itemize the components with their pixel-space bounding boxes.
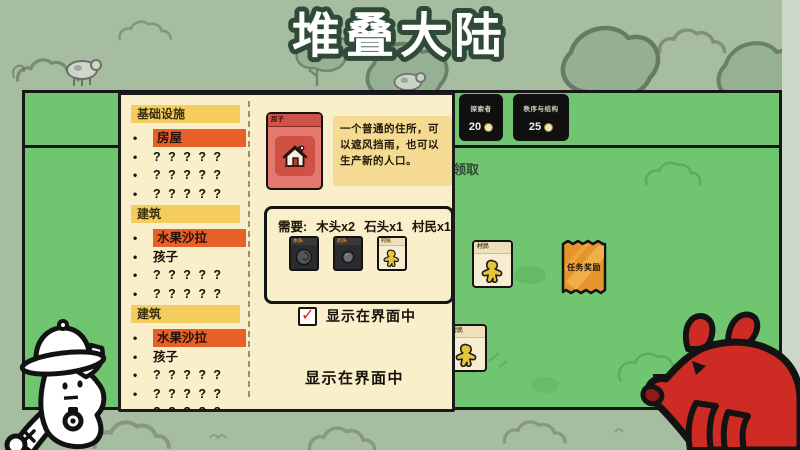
panel-divider	[248, 101, 250, 397]
requirement-qty: 村民x1	[412, 216, 451, 235]
section-header: 建筑	[131, 205, 240, 223]
list-item-fruit-salad[interactable]: •水果沙拉	[131, 329, 240, 348]
bullet-icon: •	[133, 185, 137, 203]
game-title-text: 堆叠大陆	[292, 10, 508, 63]
card-pack-button-explorer[interactable]: 探索者 20	[459, 94, 503, 141]
card-description: 一个普通的住所，可以遮风挡雨，也可以生产新的人口。	[333, 116, 452, 186]
villager-icon	[455, 343, 479, 367]
list-item-unknown[interactable]: •? ? ? ? ?	[131, 385, 240, 404]
rat-character	[638, 303, 800, 450]
list-item-house[interactable]: •房屋	[131, 129, 240, 148]
board-card-quest-reward[interactable]: 任务奖励	[560, 238, 608, 296]
list-item-unknown[interactable]: •? ? ? ? ?	[131, 266, 240, 285]
show-in-ui-checkbox-row[interactable]: ✓ 显示在界面中	[298, 306, 416, 326]
section-header: 建筑	[131, 305, 240, 323]
list-item-unknown[interactable]: •? ? ? ? ?	[131, 285, 240, 304]
villager-icon	[379, 246, 405, 270]
checkbox[interactable]: ✓	[298, 307, 317, 326]
requirement-card-stone: 石头	[333, 236, 363, 271]
claim-label: 领取	[453, 159, 479, 178]
bullet-icon: •	[133, 166, 137, 184]
list-item-unknown[interactable]: •? ? ? ? ?	[131, 366, 240, 385]
check-icon: ✓	[301, 305, 314, 325]
game-screen: 堆叠大陆 探索者 20 秩序与结构 25 领取 村民	[0, 0, 800, 450]
pack-price: 25	[529, 121, 541, 133]
bullet-icon: •	[133, 285, 137, 303]
requirements-box: 需要: 木头x2 石头x1 村民x1 木头 石头	[264, 206, 454, 304]
list-item-unknown[interactable]: •? ? ? ? ?	[131, 403, 240, 412]
show-in-ui-secondary-label[interactable]: 显示在界面中	[305, 367, 404, 388]
requirements-prefix: 需要:	[278, 216, 307, 235]
board-card-villager[interactable]: 村民	[472, 240, 513, 288]
quest-pack-label: 任务奖励	[560, 262, 608, 273]
stone-icon	[335, 245, 361, 269]
requirement-card-villager: 村民	[377, 236, 407, 271]
coin-icon	[544, 123, 553, 132]
list-item-unknown[interactable]: •? ? ? ? ?	[131, 166, 240, 185]
list-item-unknown[interactable]: •? ? ? ? ?	[131, 148, 240, 167]
card-pack-button-order-structure[interactable]: 秩序与结构 25	[513, 94, 569, 141]
pack-price: 20	[469, 121, 481, 133]
requirements-line: 需要: 木头x2 石头x1 村民x1	[267, 209, 451, 235]
checkbox-label: 显示在界面中	[326, 306, 416, 326]
game-title: 堆叠大陆	[0, 0, 800, 78]
list-item-fruit-salad[interactable]: •水果沙拉	[131, 229, 240, 248]
bullet-icon: •	[133, 266, 137, 284]
wood-icon	[291, 245, 317, 269]
house-icon	[275, 136, 315, 176]
list-item-child[interactable]: •孩子	[131, 248, 240, 267]
bullet-icon: •	[133, 129, 137, 147]
coin-icon	[484, 123, 493, 132]
villager-icon	[481, 259, 505, 283]
ideas-list: 基础设施 •房屋 •? ? ? ? ? •? ? ? ? ? •? ? ? ? …	[121, 95, 248, 409]
pack-name: 秩序与结构	[513, 103, 569, 113]
bullet-icon: •	[133, 148, 137, 166]
bullet-icon: •	[133, 229, 137, 247]
requirement-qty: 石头x1	[364, 216, 403, 235]
list-item-unknown[interactable]: •? ? ? ? ?	[131, 185, 240, 204]
house-card-title: 房子	[268, 114, 321, 127]
bullet-icon: •	[133, 248, 137, 266]
detail-card-house: 房子	[266, 112, 323, 190]
section-header: 基础设施	[131, 105, 240, 123]
ideas-tooltip-panel: 基础设施 •房屋 •? ? ? ? ? •? ? ? ? ? •? ? ? ? …	[118, 92, 455, 412]
explorer-character	[2, 315, 140, 450]
card-title: 村民	[474, 242, 511, 254]
pack-name: 探索者	[459, 103, 503, 113]
requirement-card-wood: 木头	[289, 236, 319, 271]
list-item-child[interactable]: •孩子	[131, 348, 240, 367]
requirement-qty: 木头x2	[316, 216, 355, 235]
